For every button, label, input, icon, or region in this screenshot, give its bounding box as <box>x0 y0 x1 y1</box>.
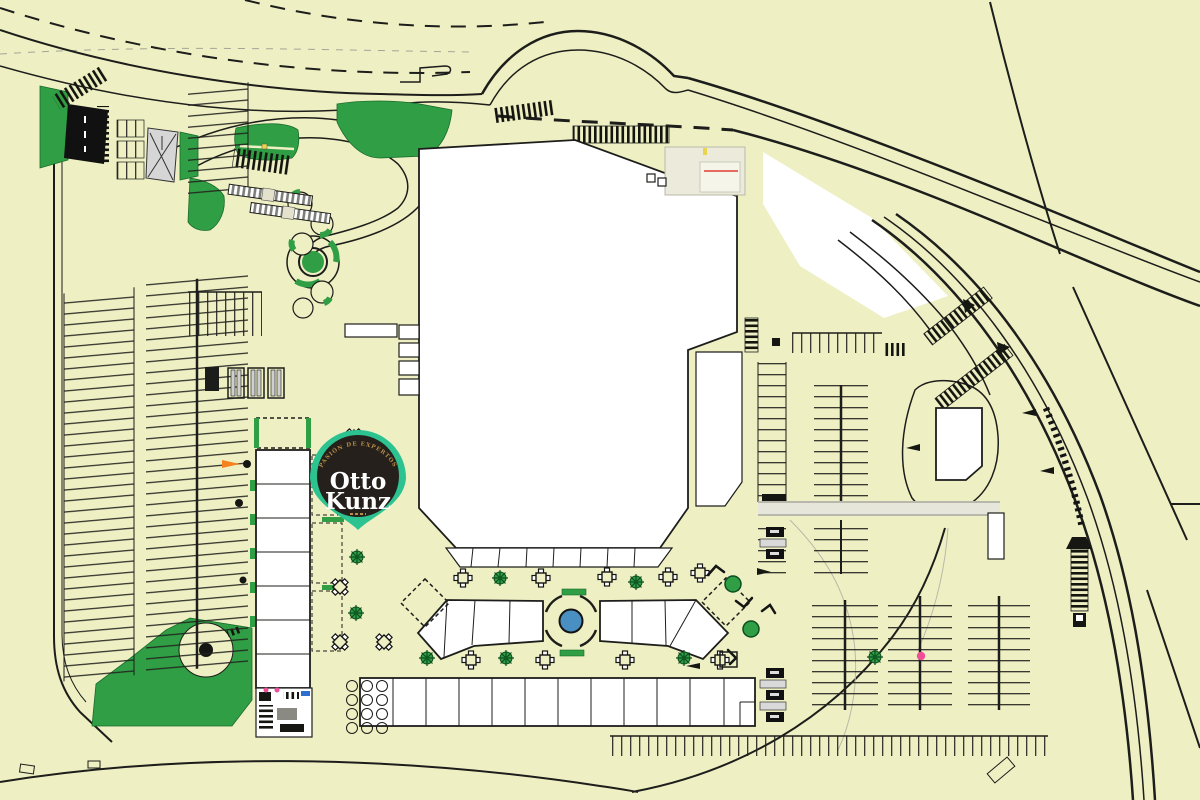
map-stage: PASIÓN DE EXPERTOS Otto Kunz <box>0 0 1200 800</box>
building-wing <box>696 352 742 506</box>
pin-name-line2: Kunz <box>325 488 391 515</box>
strip-mall-bottom <box>347 678 756 734</box>
service-cluster <box>256 688 312 738</box>
outparcel-building <box>936 408 982 480</box>
covered-walk <box>1071 549 1088 611</box>
site-plan-map: PASIÓN DE EXPERTOS Otto Kunz <box>0 0 1200 800</box>
pink-marker-dot <box>917 652 925 660</box>
